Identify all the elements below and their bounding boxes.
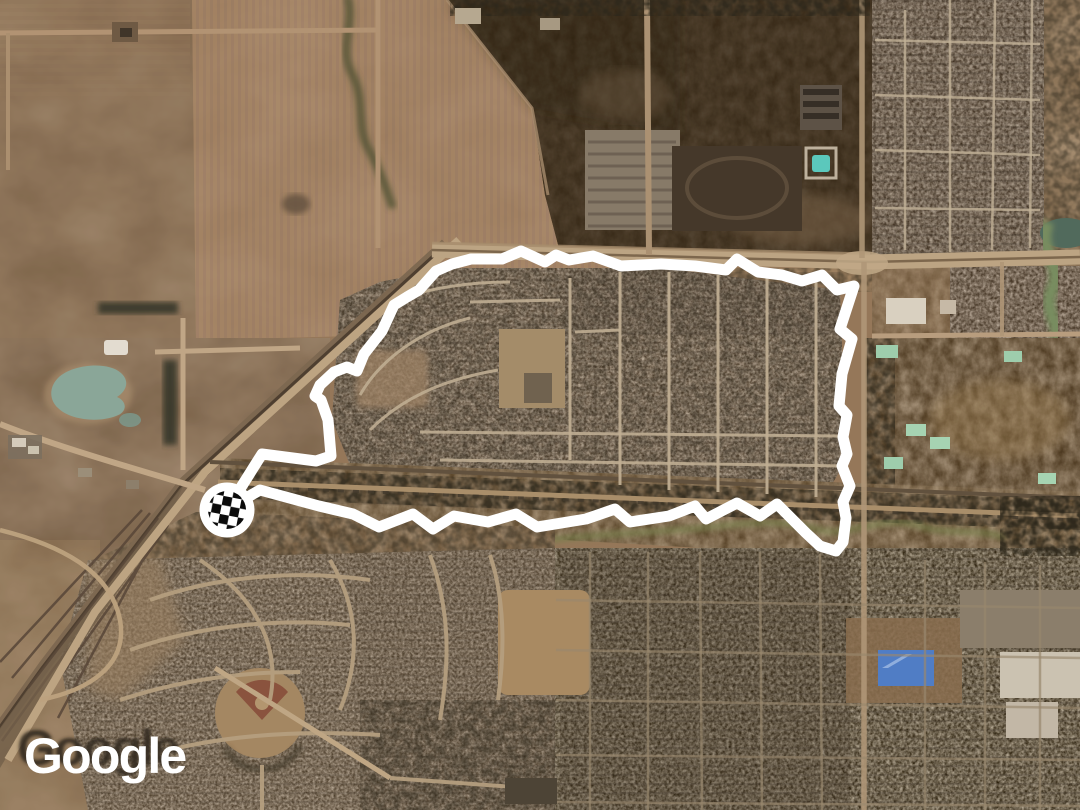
svg-text:Google: Google [24,728,186,784]
